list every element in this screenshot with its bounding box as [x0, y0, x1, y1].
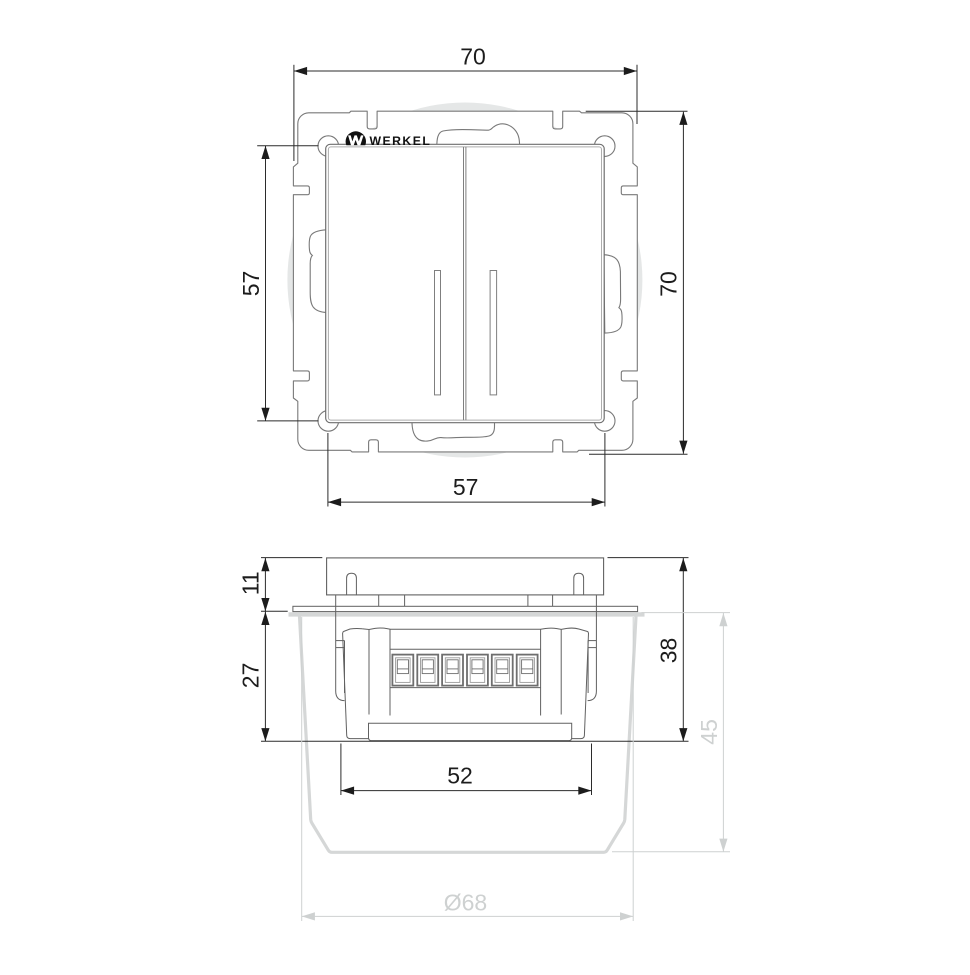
- svg-text:WERKEL: WERKEL: [370, 134, 432, 148]
- svg-text:52: 52: [447, 763, 473, 789]
- svg-text:70: 70: [460, 44, 486, 70]
- svg-text:38: 38: [656, 638, 682, 664]
- svg-text:27: 27: [238, 663, 264, 689]
- svg-text:57: 57: [238, 271, 264, 297]
- svg-text:70: 70: [656, 271, 682, 297]
- svg-text:Ø68: Ø68: [444, 890, 487, 916]
- svg-text:57: 57: [453, 474, 479, 500]
- svg-text:45: 45: [696, 719, 722, 745]
- svg-text:11: 11: [238, 571, 264, 595]
